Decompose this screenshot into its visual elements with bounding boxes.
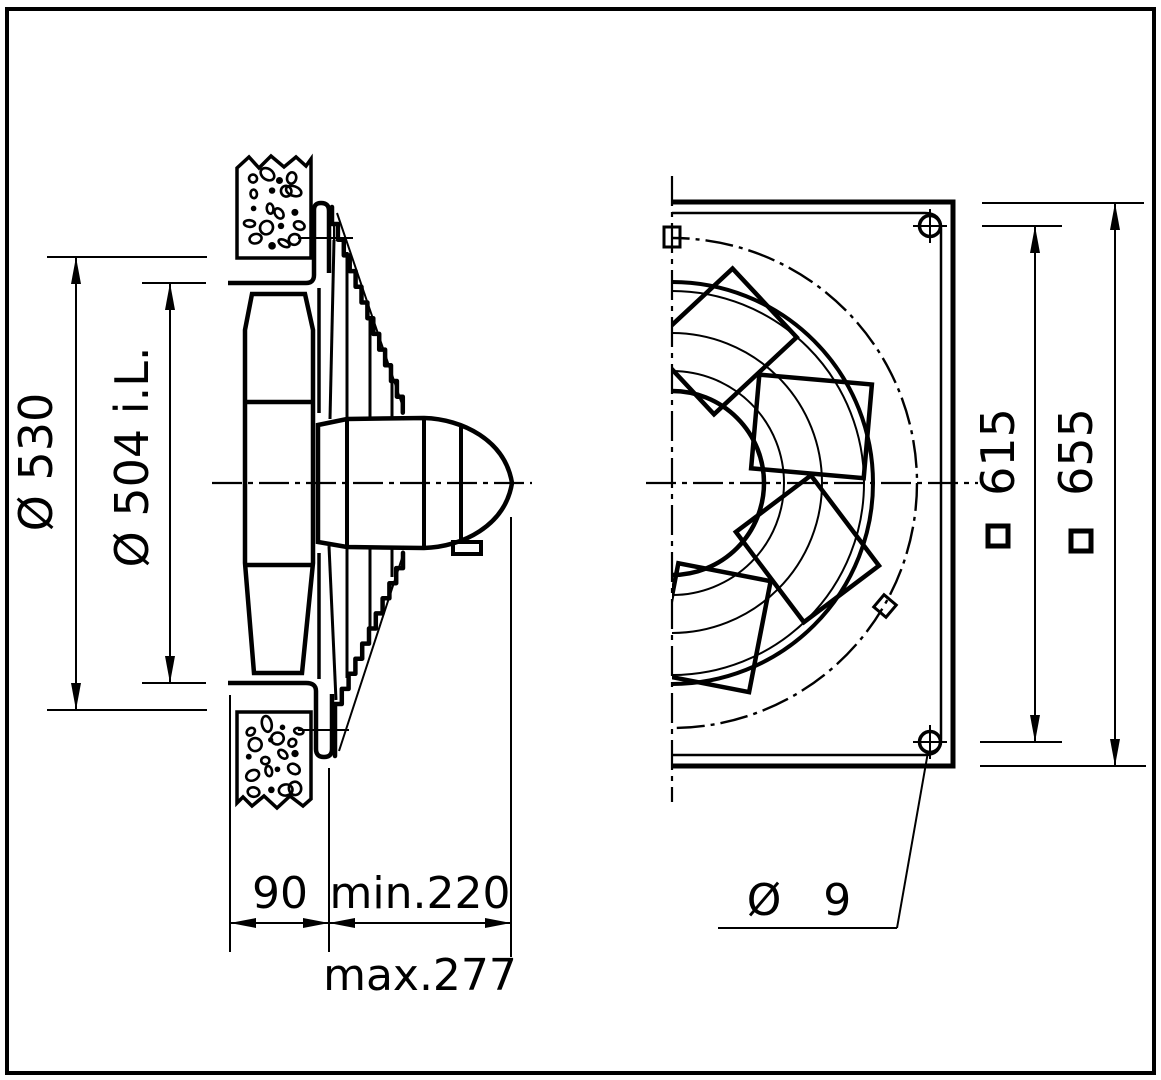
concrete-wall-top	[237, 156, 311, 258]
ring-clip-side	[874, 595, 897, 618]
dimension-depths: 90 min.220 max.277	[230, 517, 517, 1001]
side-section-view: Ø 530 Ø 504 i.L. 90 min.220 max.277	[9, 156, 532, 1001]
dimension-hole-diameter: Ø 9	[718, 752, 928, 928]
dimension-duct-inner-diameter: Ø 504 i.L.	[105, 283, 206, 683]
label-duct-inner-diameter: Ø 504 i.L.	[105, 347, 159, 568]
square-symbol-hole-pitch	[988, 526, 1008, 546]
fan-installation-drawing: Ø 530 Ø 504 i.L. 90 min.220 max.277	[0, 0, 1161, 1080]
motor-terminal-tab	[453, 542, 481, 554]
label-min-depth: min.220	[330, 868, 511, 919]
square-symbol-plate-size	[1071, 531, 1091, 551]
drawing-canvas: Ø 530 Ø 504 i.L. 90 min.220 max.277	[0, 0, 1161, 1080]
label-hole-diameter: Ø 9	[747, 875, 866, 926]
drawing-frame	[7, 9, 1154, 1073]
concrete-wall-bottom	[237, 712, 311, 808]
label-wall-opening-diameter: Ø 530	[9, 393, 63, 532]
label-wall-duct-length: 90	[252, 868, 308, 919]
stepped-cone	[329, 207, 404, 756]
front-view: 615 655 Ø 9	[427, 176, 1146, 928]
label-hole-pitch: 615	[971, 408, 1025, 496]
label-max-depth: max.277	[323, 950, 517, 1001]
label-plate-size: 655	[1049, 408, 1103, 496]
motor	[318, 418, 512, 554]
